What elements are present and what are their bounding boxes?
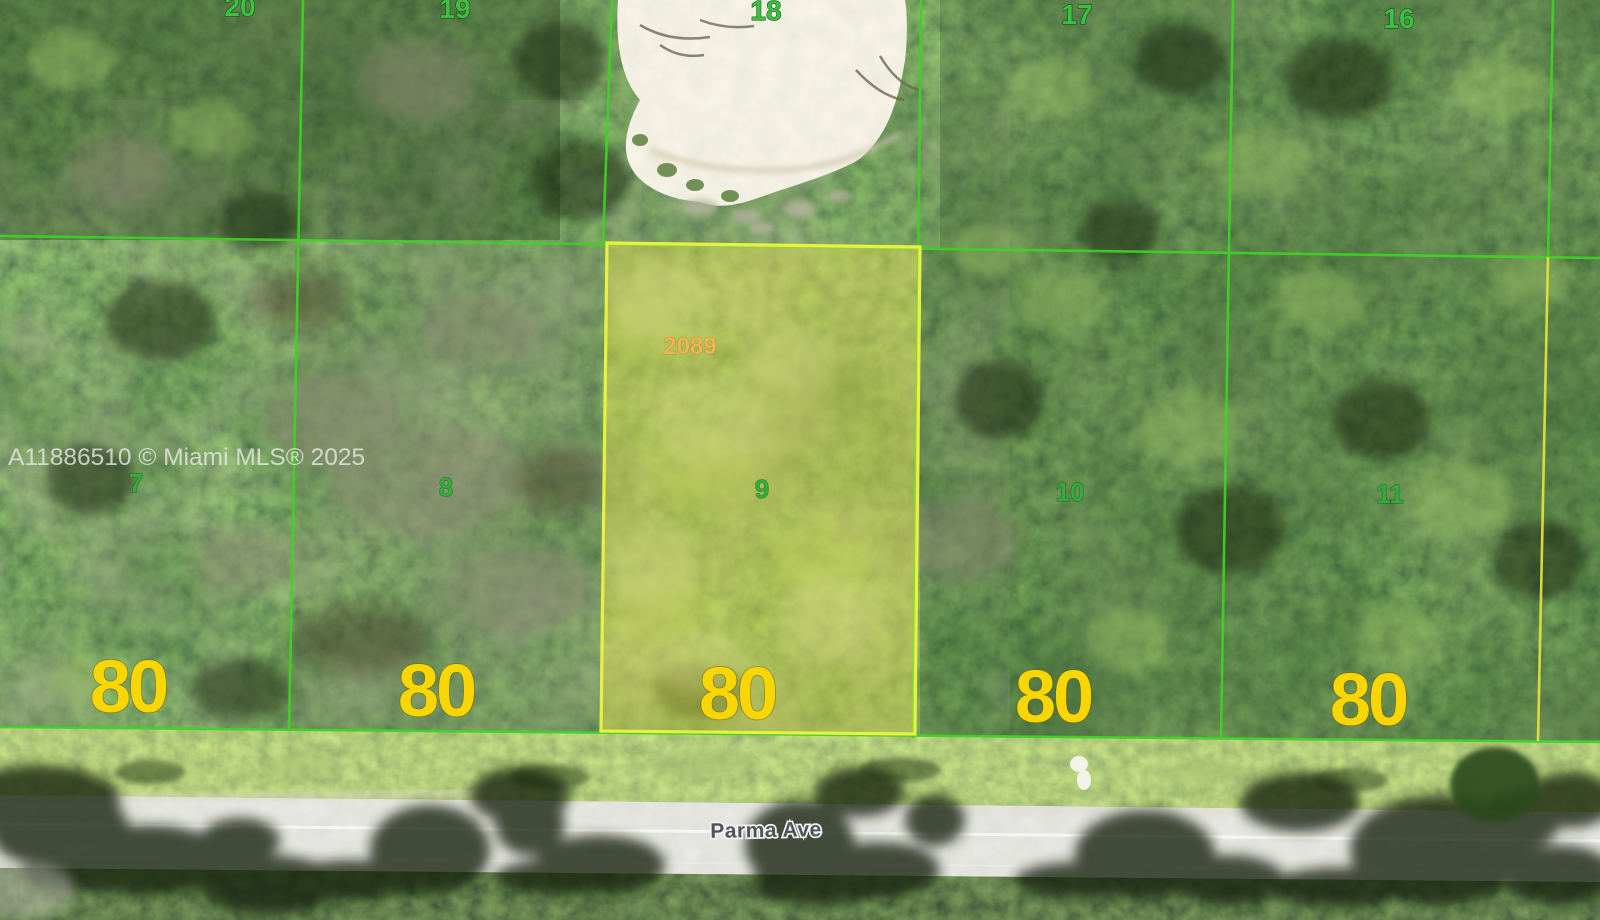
lot-number-label: 9 <box>755 474 769 504</box>
frontage-label: 80 <box>398 649 475 732</box>
listing-aerial-screenshot: 20 19 18 17 16 7 8 9 10 11 2089 80 80 80… <box>0 0 1600 920</box>
lot-number-label: 11 <box>1376 479 1404 509</box>
frontage-label: 80 <box>1015 655 1092 738</box>
parcel-number-label: 2089 <box>663 333 716 360</box>
street-name-label: Parma Ave <box>710 818 822 843</box>
lot-number-label: 8 <box>439 472 453 502</box>
top-lot-number: 18 <box>750 0 781 26</box>
frontage-label: 80 <box>90 645 167 728</box>
aerial-photo: 20 19 18 17 16 7 8 9 10 11 2089 80 80 80… <box>0 0 1600 920</box>
lot-number-label: 7 <box>129 468 143 498</box>
top-lot-number: 20 <box>224 0 255 22</box>
top-lot-number: 17 <box>1061 0 1092 30</box>
mls-watermark: A11886510 © Miami MLS® 2025 <box>8 444 365 471</box>
top-lot-number: 16 <box>1383 3 1414 34</box>
top-lot-number: 19 <box>439 0 470 24</box>
verge-tree-clump <box>1450 747 1540 823</box>
frontage-label: 80 <box>1330 658 1407 741</box>
frontage-label: 80 <box>699 652 776 735</box>
lot-number-label: 10 <box>1056 477 1085 507</box>
